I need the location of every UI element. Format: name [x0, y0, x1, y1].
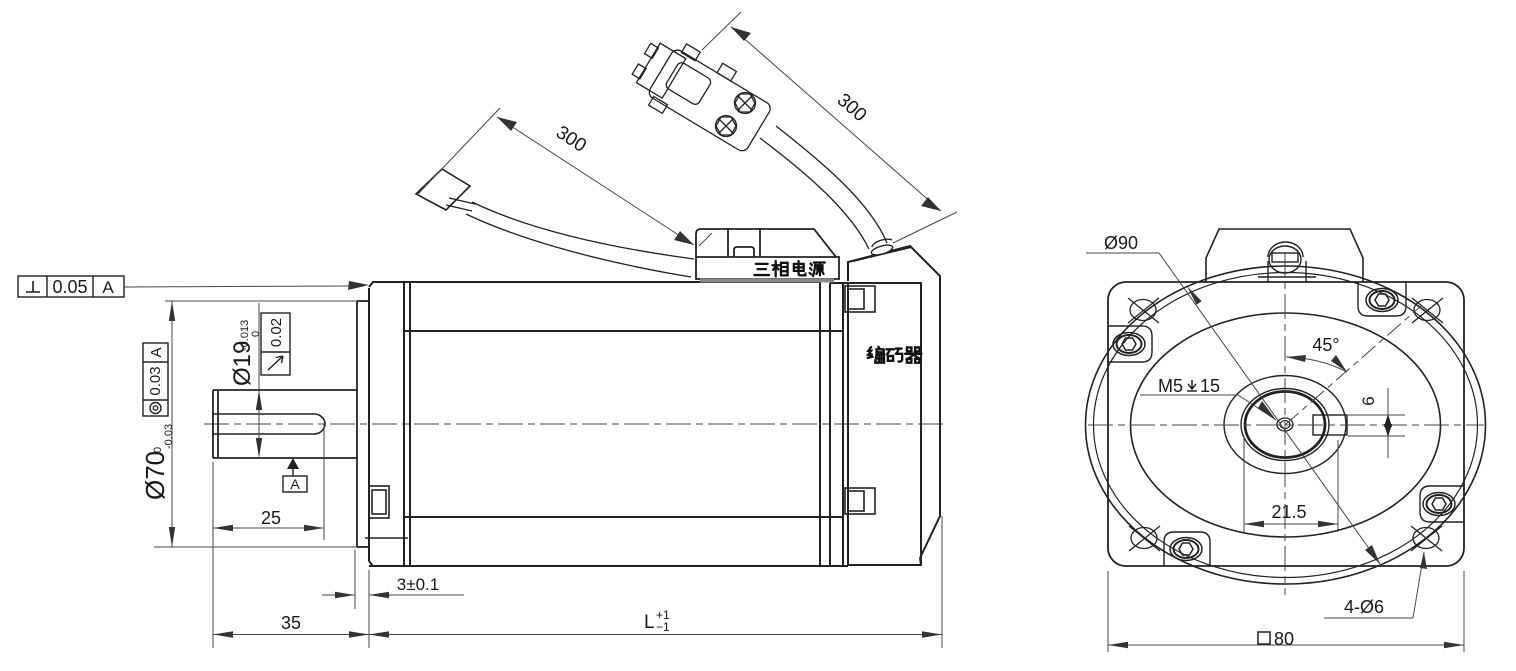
svg-text:15: 15: [1200, 376, 1220, 396]
svg-text:-0.03: -0.03: [163, 424, 175, 449]
svg-text:25: 25: [261, 508, 281, 528]
svg-text:A: A: [102, 278, 114, 297]
svg-text:6: 6: [1359, 396, 1378, 405]
svg-text:-0.013: -0.013: [239, 320, 251, 351]
svg-text:−1: −1: [656, 620, 670, 634]
svg-text:3±0.1: 3±0.1: [397, 575, 439, 594]
svg-text:0.05: 0.05: [52, 277, 87, 297]
svg-text:M5: M5: [1158, 376, 1183, 396]
svg-text:21.5: 21.5: [1271, 502, 1306, 522]
svg-text:45°: 45°: [1312, 335, 1339, 355]
svg-text:0: 0: [250, 331, 262, 337]
svg-text:A: A: [290, 476, 300, 492]
svg-text:300: 300: [552, 122, 590, 157]
svg-text:0.02: 0.02: [268, 318, 285, 347]
svg-text:L: L: [644, 612, 655, 633]
svg-text:Ø90: Ø90: [1104, 233, 1138, 253]
svg-text:80: 80: [1274, 629, 1294, 649]
svg-text:Ø70: Ø70: [140, 451, 170, 500]
svg-text:4-Ø6: 4-Ø6: [1344, 597, 1384, 617]
svg-text:0.03: 0.03: [147, 366, 164, 395]
svg-text:35: 35: [281, 613, 301, 633]
svg-text:A: A: [148, 347, 165, 357]
